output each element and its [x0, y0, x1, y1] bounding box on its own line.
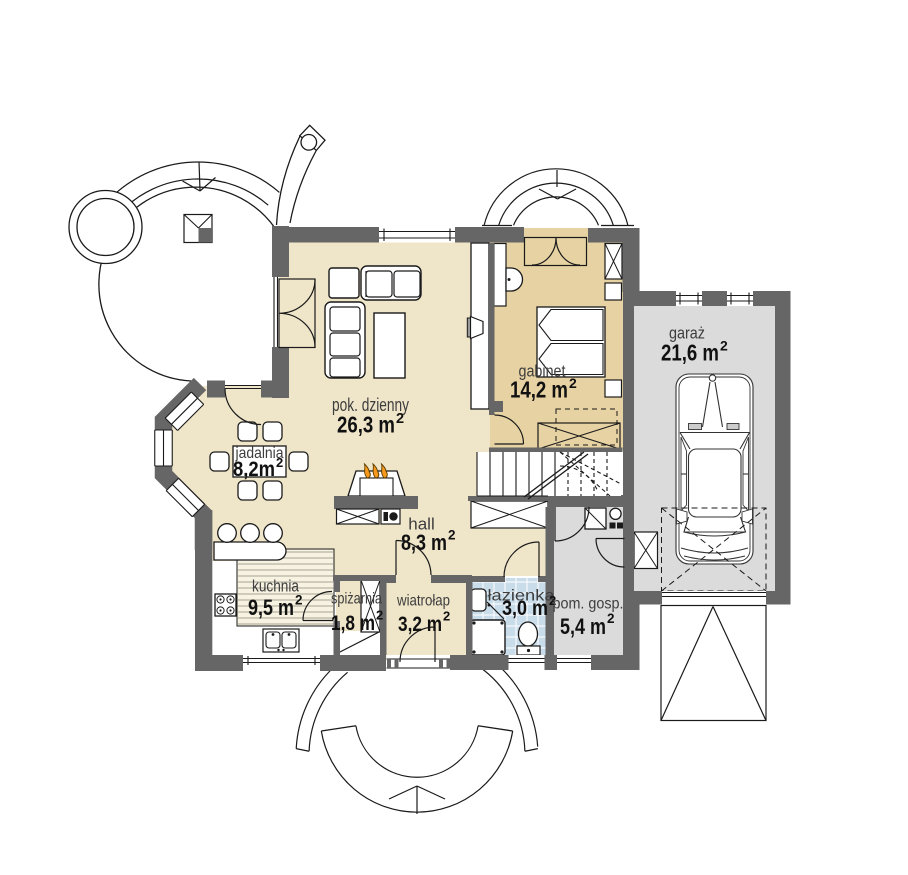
svg-text:8,2m: 8,2m — [233, 458, 275, 481]
svg-text:2: 2 — [276, 455, 283, 470]
svg-text:21,6 m: 21,6 m — [661, 340, 719, 366]
svg-text:3,2 m: 3,2 m — [398, 613, 442, 636]
svg-text:8,3 m: 8,3 m — [401, 530, 447, 555]
svg-text:3,0 m: 3,0 m — [502, 597, 548, 620]
svg-text:2: 2 — [720, 338, 728, 354]
svg-text:wiatrołap: wiatrołap — [396, 593, 450, 610]
svg-text:2: 2 — [448, 528, 456, 543]
svg-text:2: 2 — [295, 593, 303, 608]
svg-text:2: 2 — [396, 411, 404, 427]
svg-text:spiżarnia: spiżarnia — [331, 591, 382, 608]
svg-text:5,4 m: 5,4 m — [560, 614, 606, 639]
svg-text:2: 2 — [607, 611, 615, 626]
svg-text:kuchnia: kuchnia — [252, 577, 299, 596]
svg-text:2: 2 — [443, 609, 450, 624]
svg-text:26,3 m: 26,3 m — [337, 412, 395, 438]
svg-text:9,5 m: 9,5 m — [248, 595, 294, 620]
svg-text:1,8 m: 1,8 m — [331, 612, 375, 635]
svg-text:2: 2 — [569, 375, 577, 391]
svg-text:14,2 m: 14,2 m — [510, 377, 568, 403]
svg-text:2: 2 — [376, 608, 383, 623]
svg-text:pom. gosp.: pom. gosp. — [553, 596, 624, 613]
